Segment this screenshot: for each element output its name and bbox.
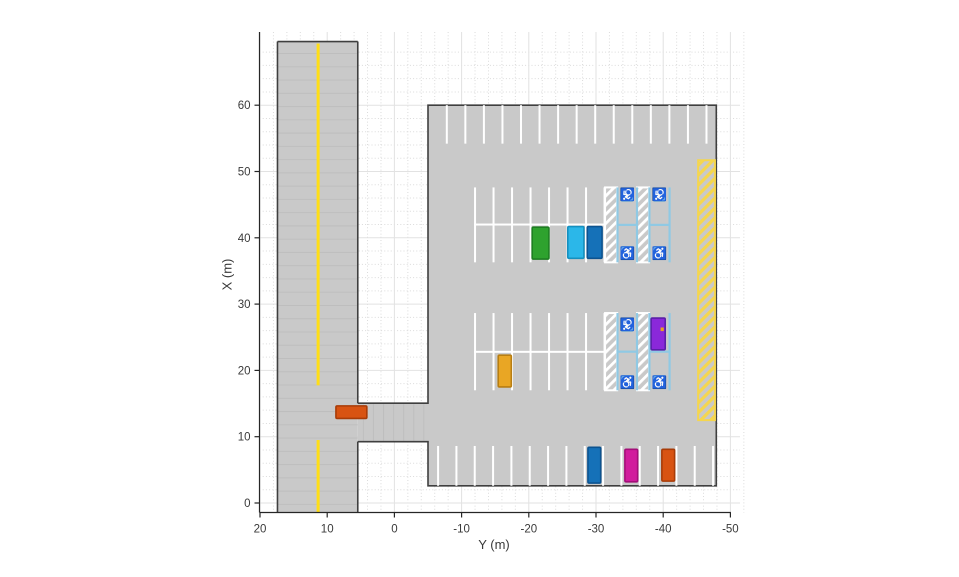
accessible-parking-icon: ♿ — [619, 375, 635, 390]
parking-space-line — [668, 105, 670, 143]
x-tick-label: -30 — [588, 524, 605, 536]
parking-space-line — [446, 105, 448, 143]
x-tick-label: 20 — [254, 524, 267, 536]
scenario-plot-canvas: ♿♿♿♿♿♿♿20100-10-20-30-40-500102030405060 — [0, 0, 959, 577]
accessible-parking-icon: ♿ — [619, 246, 635, 261]
parking-space-line — [694, 446, 696, 486]
parking-space-line — [650, 105, 652, 143]
orange-car-entrance — [336, 406, 367, 419]
accessible-spot-divider — [649, 351, 669, 353]
no-parking-hatch — [637, 313, 649, 390]
no-parking-hatch — [637, 187, 649, 262]
parking-space-line — [613, 105, 615, 143]
parking-space-line — [712, 446, 714, 486]
no-parking-hatch — [605, 313, 617, 390]
parking-space-line — [437, 446, 439, 486]
parking-space-line — [455, 446, 457, 486]
parking-space-line — [576, 105, 578, 143]
wheelchair-icon: ♿ — [619, 187, 635, 202]
blue-car-middle — [587, 227, 602, 259]
wheelchair-icon: ♿ — [652, 375, 668, 390]
no-parking-hatch — [605, 187, 617, 262]
y-tick-label: 60 — [238, 100, 251, 112]
parking-space-line — [687, 105, 689, 143]
y-tick-label: 10 — [238, 432, 251, 444]
parking-space-line — [529, 446, 531, 486]
wheelchair-icon: ♿ — [619, 317, 635, 332]
parking-space-line — [620, 446, 622, 486]
parking-space-line — [557, 105, 559, 143]
scenario-layer: ♿♿♿♿♿♿♿ — [277, 42, 716, 513]
no-parking-zone-hatched — [698, 160, 715, 420]
parking-space-line — [474, 446, 476, 486]
green-car — [532, 227, 549, 259]
accessible-spot-divider — [649, 224, 669, 226]
magenta-car — [625, 449, 638, 481]
parking-lot-scenario-figure: ♿♿♿♿♿♿♿20100-10-20-30-40-500102030405060… — [0, 0, 959, 577]
parking-space-line — [483, 105, 485, 143]
parking-space-line — [705, 105, 707, 143]
accessible-parking-icon: ♿ — [652, 246, 668, 261]
parking-space-line — [639, 446, 641, 486]
purple-car — [651, 318, 665, 350]
parking-space-line — [657, 446, 659, 486]
y-tick-label: 50 — [238, 167, 251, 179]
parking-space-line — [464, 105, 466, 143]
parking-space-line — [584, 446, 586, 486]
parking-space-line — [510, 446, 512, 486]
accessible-parking-icon: ♿ — [652, 375, 668, 390]
purple-car-marker — [661, 327, 664, 331]
parking-space-line — [594, 105, 596, 143]
parking-space-line — [602, 446, 604, 486]
accessible-spot-divider — [618, 351, 637, 353]
y-tick-label: 0 — [244, 498, 250, 510]
parking-space-line — [565, 446, 567, 486]
x-tick-label: -10 — [453, 524, 470, 536]
accessible-parking-icon: ♿ — [619, 187, 635, 202]
wheelchair-icon: ♿ — [652, 187, 668, 202]
x-axis-label: Y (m) — [394, 537, 594, 552]
road-center-line — [317, 44, 320, 386]
accessible-parking-icon: ♿ — [619, 317, 635, 332]
orange-car-bottom — [662, 449, 675, 481]
accessible-spot-divider — [618, 224, 637, 226]
y-tick-label: 40 — [238, 233, 251, 245]
wheelchair-icon: ♿ — [619, 246, 635, 261]
parking-space-line — [539, 105, 541, 143]
parking-space-line — [547, 446, 549, 486]
road-center-line — [317, 440, 320, 513]
accessible-parking-icon: ♿ — [652, 187, 668, 202]
parking-space-line — [492, 446, 494, 486]
wheelchair-icon: ♿ — [619, 375, 635, 390]
parking-space-line — [631, 105, 633, 143]
double-row-separator-line — [474, 224, 606, 226]
parking-space-line — [520, 105, 522, 143]
amber-car — [498, 355, 511, 387]
y-tick-label: 20 — [238, 365, 251, 377]
y-tick-label: 30 — [238, 299, 251, 311]
blue-car-bottom — [588, 447, 601, 483]
parking-space-line — [675, 446, 677, 486]
y-axis-label: X (m) — [220, 235, 235, 315]
double-row-separator-line — [474, 351, 606, 353]
x-tick-label: 10 — [321, 524, 334, 536]
x-tick-label: -50 — [722, 524, 739, 536]
x-tick-label: 0 — [391, 524, 397, 536]
entrance-texture — [358, 403, 428, 441]
parking-space-line — [501, 105, 503, 143]
cyan-car — [568, 227, 584, 259]
parking-lot-surface — [428, 105, 716, 486]
wheelchair-icon: ♿ — [652, 246, 668, 261]
x-tick-label: -20 — [520, 524, 537, 536]
x-tick-label: -40 — [655, 524, 672, 536]
